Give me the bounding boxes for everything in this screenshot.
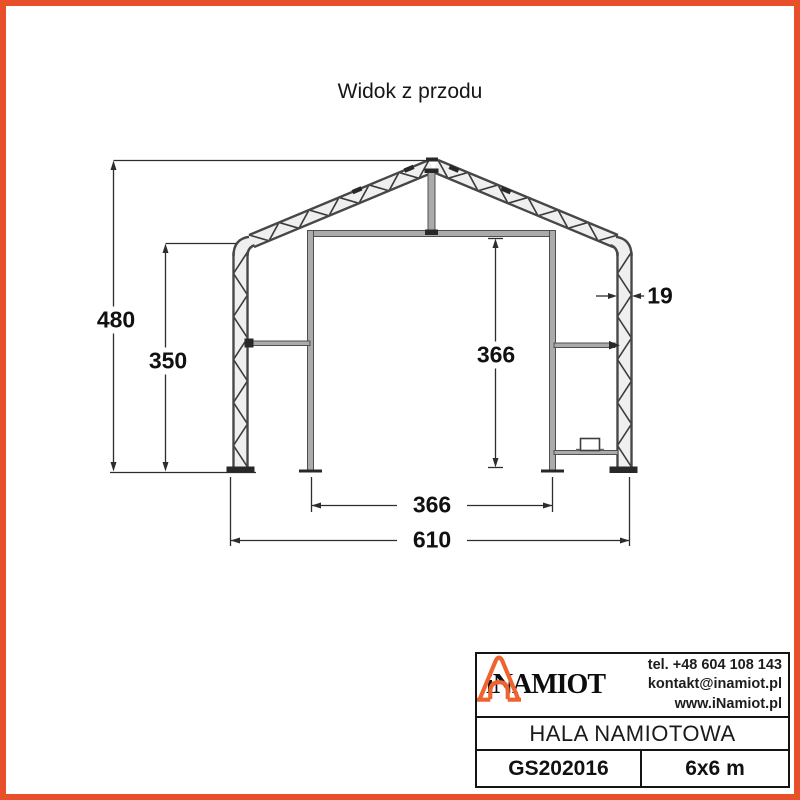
dim-label-door-width: 366 (410, 492, 454, 519)
jamb-foot-right (541, 470, 564, 473)
tent-frame (227, 158, 638, 474)
dim-label-side-height: 350 (146, 348, 190, 375)
door-jamb-right (550, 231, 556, 472)
contact-phone: tel. +48 604 108 143 (648, 656, 782, 676)
model-number: GS202016 (477, 751, 642, 786)
contact-email: kontakt@inamiot.pl (648, 675, 782, 695)
girt-right (554, 343, 615, 348)
contact-website: www.iNamiot.pl (648, 695, 782, 715)
technical-drawing-page: Widok z przodu (0, 0, 800, 800)
title-block-bottom-row: GS202016 6x6 m (477, 751, 788, 786)
dim-label-thickness: 19 (644, 283, 676, 310)
column-truss-right (618, 252, 632, 467)
foot-plate-right (610, 467, 638, 474)
king-post (428, 171, 435, 232)
dim-label-total-width: 610 (410, 527, 454, 554)
title-block-header-row: iNAMIOT tel. +48 604 108 143 kontakt@ina… (477, 654, 788, 718)
eave-knees (234, 237, 632, 256)
dim-label-total-height: 480 (94, 307, 138, 334)
contact-info: tel. +48 604 108 143 kontakt@inamiot.pl … (648, 656, 782, 715)
girt-left (249, 341, 310, 346)
door-trolley (576, 439, 604, 451)
dim-label-door-height: 366 (474, 342, 518, 369)
size-label: 6x6 m (642, 751, 788, 786)
king-post-top-plate (425, 169, 439, 174)
king-post-bottom-plate (425, 230, 438, 236)
title-block: iNAMIOT tel. +48 604 108 143 kontakt@ina… (475, 652, 790, 788)
door-jamb-left (308, 231, 314, 472)
jamb-foot-left (299, 470, 322, 473)
column-truss-left (234, 252, 248, 467)
girt-left-plate (245, 339, 254, 348)
product-name: HALA NAMIOTOWA (477, 718, 788, 751)
